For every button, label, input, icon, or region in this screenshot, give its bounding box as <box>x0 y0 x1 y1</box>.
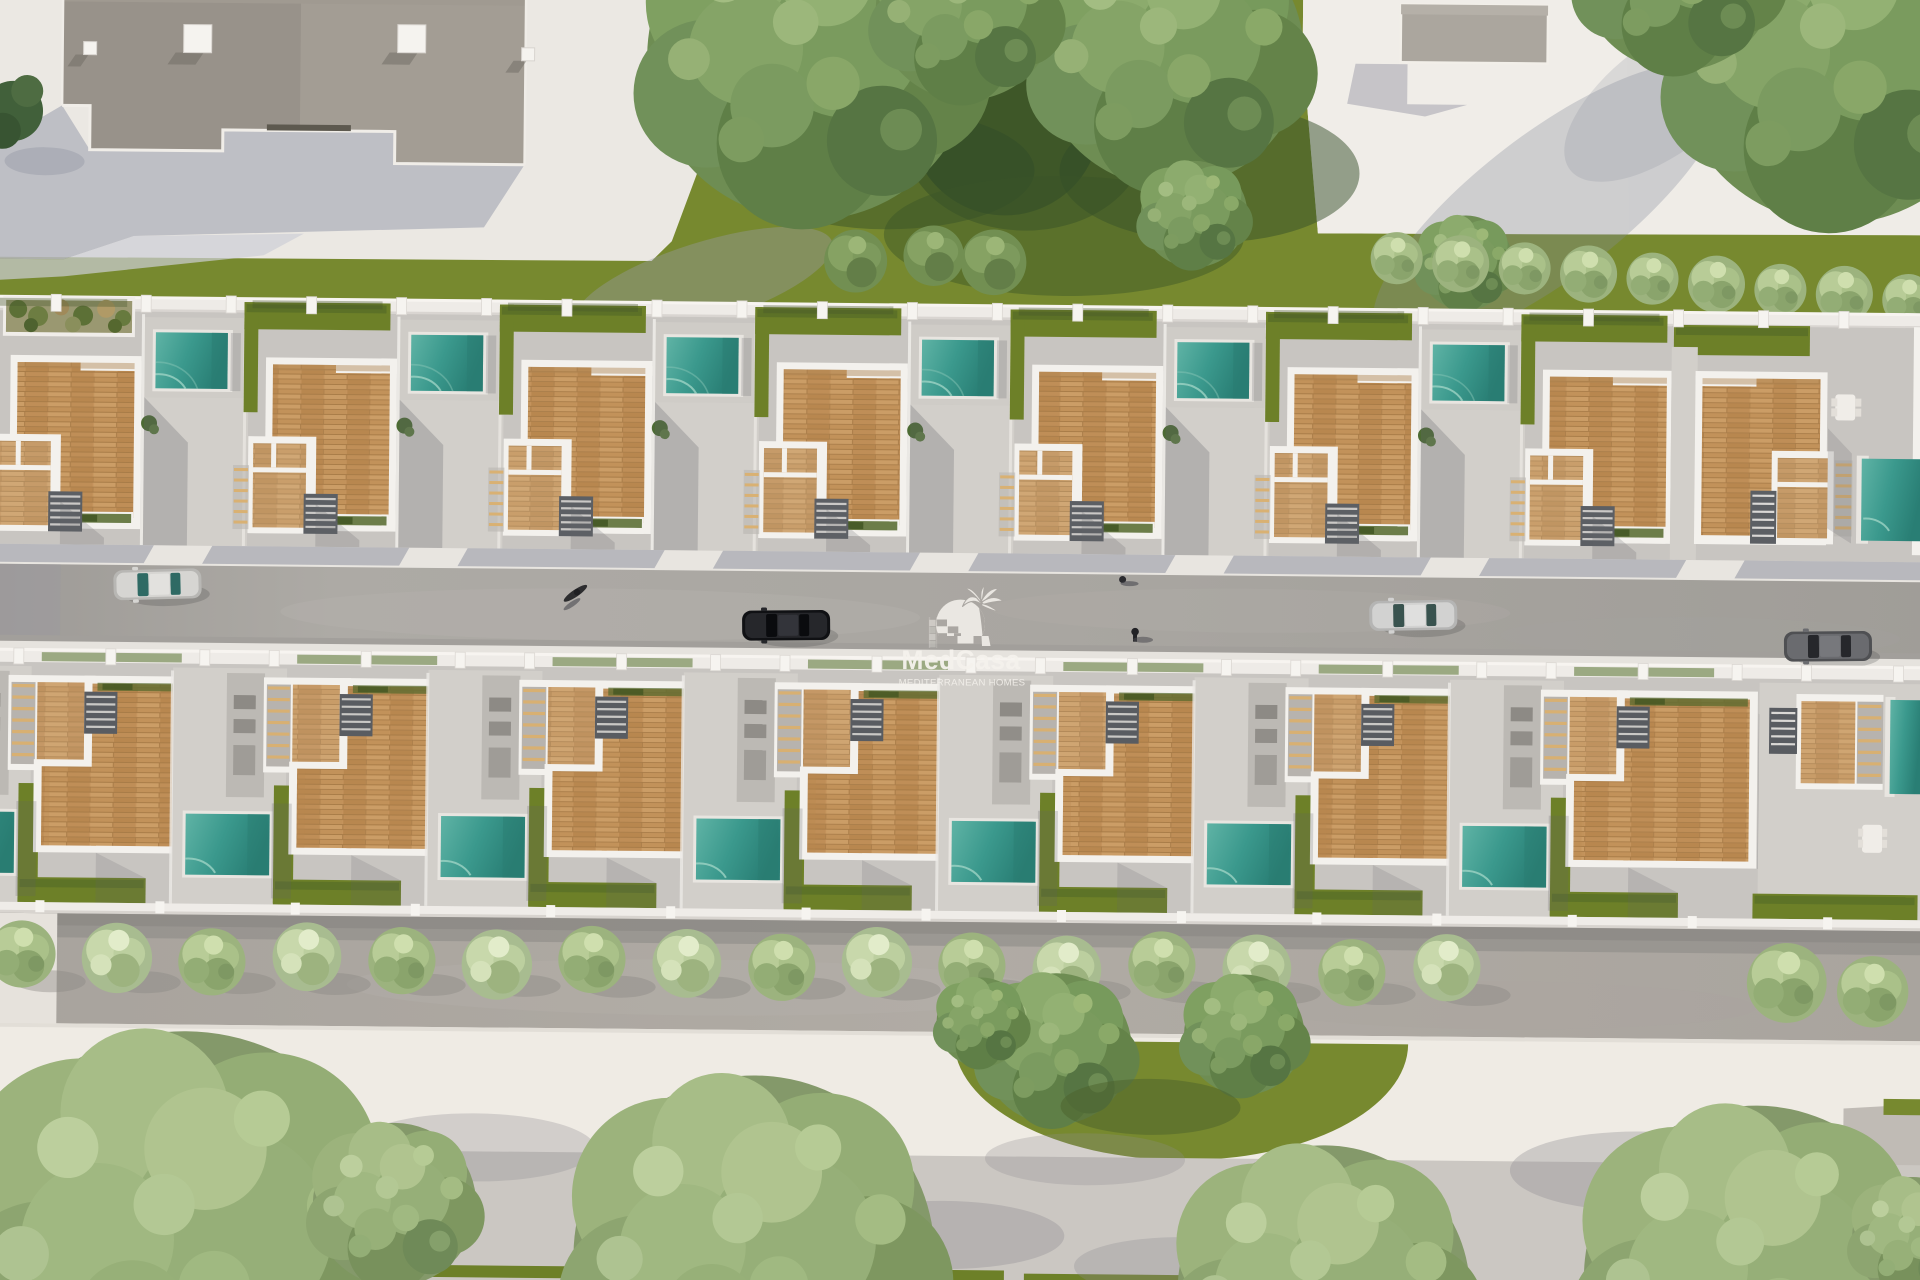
svg-text:MEDITERRANEAN HOMES: MEDITERRANEAN HOMES <box>899 678 1026 689</box>
svg-text:MedCasa: MedCasa <box>901 645 1020 675</box>
